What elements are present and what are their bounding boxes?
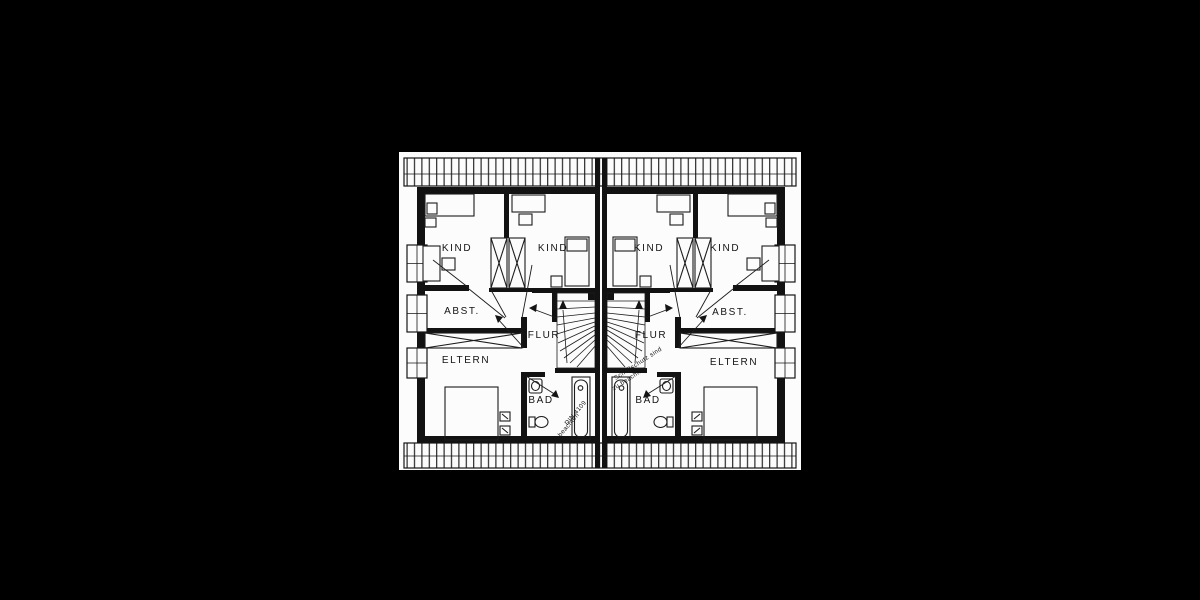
room-label-bad-right: BAD — [635, 395, 660, 406]
floor-plan: KIND KIND ABST. FLUR ELTERN BAD KIND KIN… — [399, 152, 801, 470]
room-label-flur-right: FLUR — [635, 330, 668, 341]
room-label-kind-2-left: KIND — [538, 243, 568, 254]
room-label-eltern-left: ELTERN — [442, 355, 490, 366]
room-label-kind-1-left: KIND — [442, 243, 472, 254]
room-label-eltern-right: ELTERN — [710, 357, 758, 368]
room-label-kind-1-right: KIND — [634, 243, 664, 254]
right-house — [602, 187, 795, 443]
party-wall — [595, 158, 607, 468]
left-house — [407, 187, 600, 443]
room-label-abst-right: ABST. — [712, 307, 748, 318]
room-label-kind-2-right: KIND — [710, 243, 740, 254]
floor-plan-paper: KIND KIND ABST. FLUR ELTERN BAD KIND KIN… — [399, 152, 801, 470]
screenshot-canvas: KIND KIND ABST. FLUR ELTERN BAD KIND KIN… — [0, 0, 1200, 600]
room-label-abst-left: ABST. — [444, 306, 480, 317]
room-label-flur-left: FLUR — [528, 330, 561, 341]
room-label-bad-left: BAD — [528, 395, 553, 406]
